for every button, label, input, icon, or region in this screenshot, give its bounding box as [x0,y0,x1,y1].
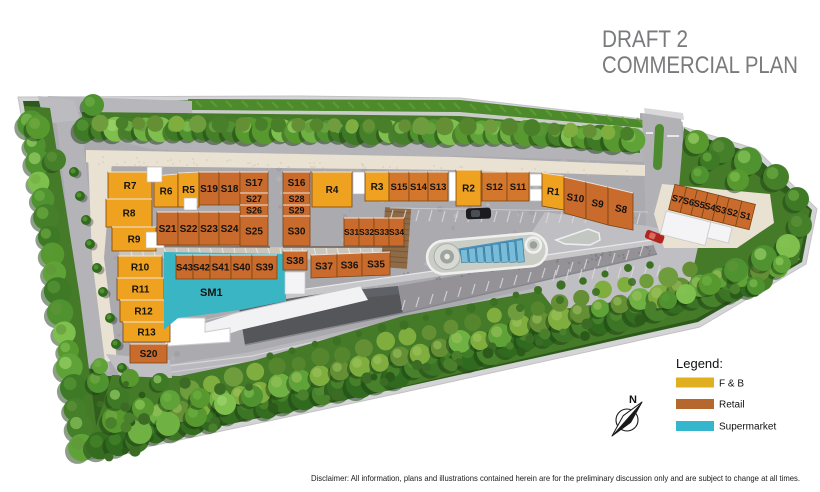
svg-text:S16: S16 [288,178,306,189]
svg-text:S20: S20 [140,349,158,360]
svg-text:Retail: Retail [719,400,745,411]
svg-text:R12: R12 [134,307,153,318]
svg-text:SM1: SM1 [200,287,223,299]
svg-text:S42: S42 [193,262,210,273]
svg-text:R10: R10 [131,263,150,274]
svg-text:COMMERCIAL PLAN: COMMERCIAL PLAN [602,52,798,79]
svg-text:S33: S33 [374,227,389,237]
svg-text:S18: S18 [221,184,239,195]
svg-text:S13: S13 [430,182,447,193]
svg-text:R9: R9 [128,235,141,246]
svg-text:R4: R4 [326,185,339,196]
svg-text:S12: S12 [486,182,503,193]
svg-text:S37: S37 [315,262,333,273]
svg-text:R8: R8 [123,209,136,220]
svg-text:S9: S9 [590,198,604,211]
svg-text:Disclaimer: All information, p: Disclaimer: All information, plans and i… [311,473,800,483]
svg-text:R11: R11 [132,285,150,296]
svg-text:R7: R7 [124,181,137,192]
svg-text:S22: S22 [180,224,198,235]
svg-text:R2: R2 [462,184,475,195]
svg-text:S40: S40 [233,263,251,274]
svg-text:S38: S38 [286,256,304,267]
svg-text:R6: R6 [160,187,173,198]
svg-text:S26: S26 [246,206,262,216]
svg-text:S23: S23 [200,224,218,235]
svg-text:S35: S35 [367,260,385,271]
svg-text:Legend:: Legend: [676,356,723,371]
svg-text:S28: S28 [288,194,304,204]
svg-text:R5: R5 [182,185,195,196]
svg-text:S14: S14 [410,182,428,193]
svg-text:S15: S15 [391,182,409,193]
svg-text:S24: S24 [221,224,239,235]
svg-text:S29: S29 [288,206,304,216]
svg-text:S43: S43 [176,262,193,273]
svg-text:S25: S25 [245,227,263,238]
svg-text:S39: S39 [256,263,274,274]
svg-text:S31: S31 [344,227,359,237]
svg-text:Supermarket: Supermarket [719,422,776,433]
svg-text:R3: R3 [371,182,384,193]
svg-text:N: N [629,394,637,406]
svg-text:S34: S34 [389,227,404,237]
svg-text:S30: S30 [288,227,306,238]
svg-text:S41: S41 [212,263,230,274]
svg-text:S32: S32 [359,227,374,237]
svg-text:R1: R1 [546,186,560,198]
svg-text:S17: S17 [245,178,263,189]
svg-text:S36: S36 [341,261,359,272]
svg-text:S11: S11 [510,182,527,193]
svg-text:DRAFT 2: DRAFT 2 [602,26,688,53]
svg-text:S19: S19 [200,184,218,195]
svg-text:F & B: F & B [719,379,744,390]
svg-text:S21: S21 [159,224,177,235]
svg-text:R13: R13 [137,328,156,339]
svg-text:S27: S27 [246,194,262,204]
